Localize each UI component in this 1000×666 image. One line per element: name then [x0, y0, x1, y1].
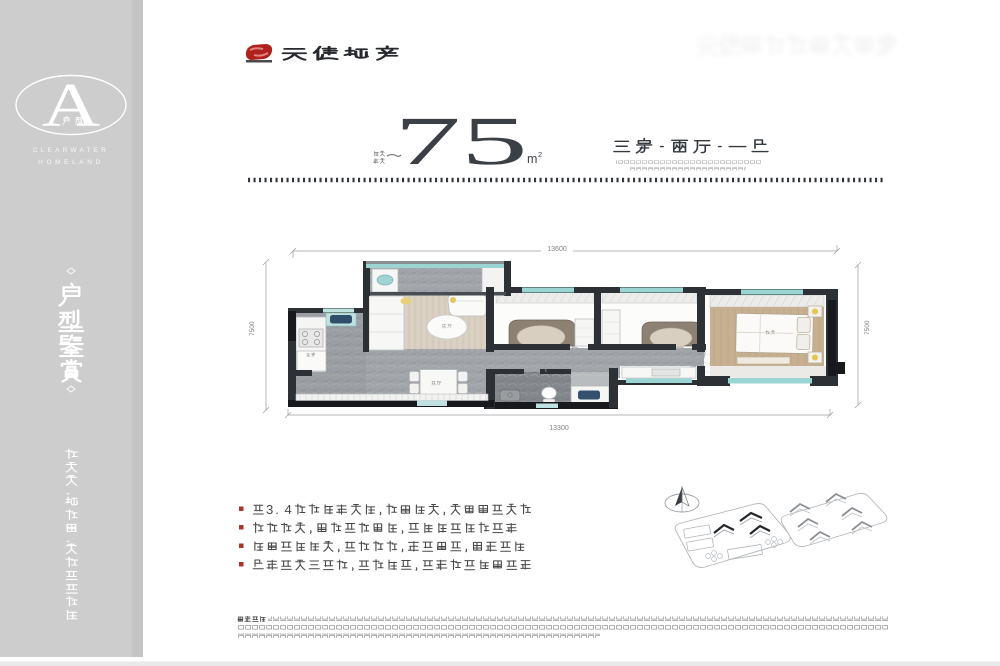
svg-text:.: .: [275, 502, 279, 517]
svg-text:13300: 13300: [549, 425, 569, 432]
svg-text:HOMELAND: HOMELAND: [38, 159, 104, 166]
svg-text:A: A: [42, 71, 100, 140]
svg-text:3: 3: [266, 502, 273, 517]
svg-text:4: 4: [285, 502, 292, 517]
svg-text:CLEARWATER: CLEARWATER: [33, 147, 109, 154]
svg-text:75: 75: [394, 103, 528, 179]
svg-text:m: m: [527, 152, 537, 166]
svg-text:13600: 13600: [547, 246, 567, 253]
svg-text:7500: 7500: [249, 321, 256, 336]
svg-text:2: 2: [538, 150, 542, 159]
svg-text:7500: 7500: [864, 320, 871, 335]
